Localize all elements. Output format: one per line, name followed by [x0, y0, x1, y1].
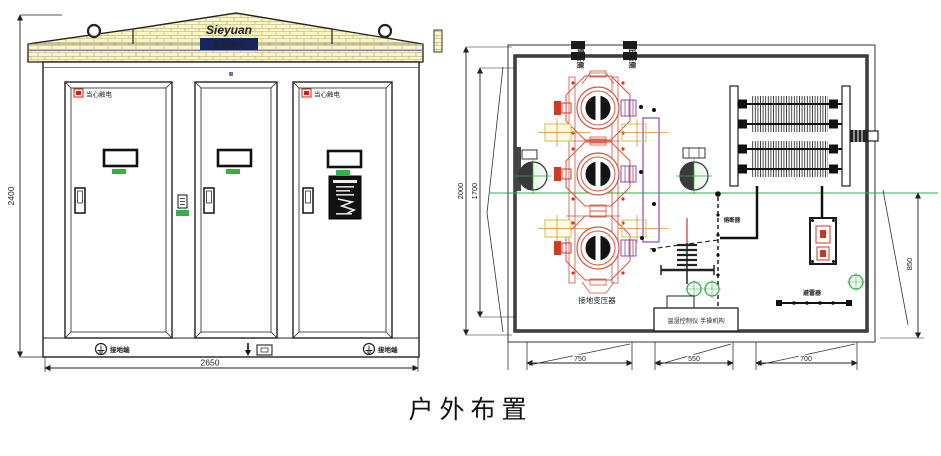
transformer-label: 接地变压器 — [578, 295, 616, 305]
door-left: 当心触电 — [65, 82, 172, 338]
entry-label-left: 高压侧 — [576, 48, 585, 69]
plan-drawing: 高压侧 低压侧 — [455, 0, 941, 395]
indicator-green — [336, 170, 350, 175]
door-display-window — [104, 150, 137, 166]
dim-bottom-2: 550 — [688, 356, 700, 363]
terminal-left — [554, 167, 561, 181]
entry-label-right: 低压侧 — [628, 47, 637, 69]
roof: Sieyuan 思源电气 — [28, 13, 442, 62]
door-warning-label: 当心触电 — [314, 90, 341, 99]
break-leader — [487, 67, 503, 332]
dim-inner-height: 1700 — [470, 183, 479, 200]
ground-symbol-right-icon — [364, 344, 375, 355]
door-middle — [195, 82, 277, 338]
elevation-drawing: Sieyuan 思源电气 当心触电 — [0, 0, 470, 395]
ground-label-left: 接地端 — [110, 345, 130, 354]
figure-caption: 户外布置 — [0, 390, 941, 426]
ground-symbol-left-icon — [96, 344, 107, 355]
arrester-label: 避雷器 — [802, 289, 822, 297]
dim-height: 2400 — [6, 186, 16, 205]
terminal-left — [554, 101, 561, 115]
base-plate — [257, 345, 272, 355]
cable-label: 熔断器 — [724, 216, 741, 224]
metering-box — [810, 218, 836, 264]
terminal-left — [554, 241, 561, 255]
dim-bottom-3: 700 — [800, 356, 812, 363]
brand-logo: Sieyuan — [206, 23, 252, 37]
dim-bottom-1: 750 — [574, 356, 586, 363]
wall-connector — [850, 130, 868, 142]
door-right: 当心触电 — [293, 82, 392, 338]
vent-dot — [229, 72, 233, 76]
roof-edge-piece — [434, 30, 442, 52]
resistor-grid-2 — [752, 141, 828, 177]
door-display-window — [328, 151, 361, 167]
door-display-window — [218, 150, 251, 166]
roof-outline — [28, 13, 423, 62]
indicator-green — [112, 169, 126, 174]
indicator-green — [226, 169, 240, 174]
controller-label: 温湿控制仪 手操机构 — [667, 317, 724, 325]
brand-name-cn: 思源电气 — [213, 40, 245, 50]
center-lock — [176, 195, 189, 216]
dim-right: 850 — [905, 258, 914, 271]
ground-label-right: 接地端 — [378, 345, 398, 354]
door-handle — [204, 188, 214, 213]
dim-width: 2650 — [201, 358, 220, 368]
screenshot-root: Sieyuan 思源电气 当心触电 — [0, 0, 941, 456]
lifting-lug-left-icon — [88, 25, 100, 37]
door-warning-label: 当心触电 — [86, 90, 113, 99]
resistor-grid-1 — [752, 96, 828, 132]
door-handle — [303, 188, 313, 213]
lifting-lug-right-icon — [379, 25, 391, 37]
door3-diagram-panel — [329, 176, 361, 219]
dim-outer-height: 2000 — [456, 183, 465, 200]
door-handle — [75, 188, 85, 213]
